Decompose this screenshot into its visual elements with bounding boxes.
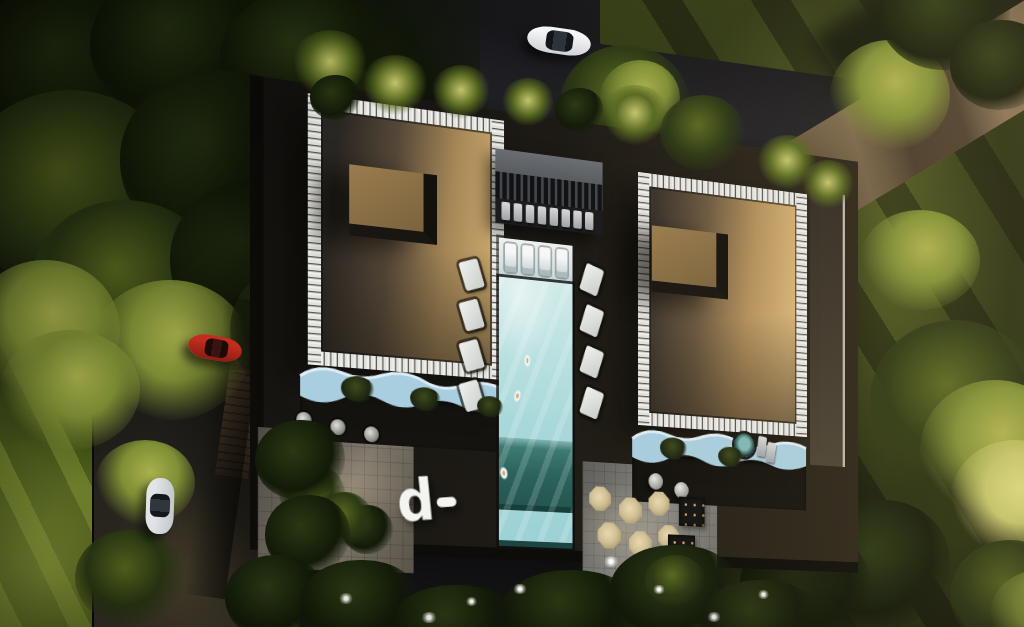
vignette-overlay: [0, 0, 1024, 627]
aerial-render-scene: d: [0, 0, 1024, 627]
